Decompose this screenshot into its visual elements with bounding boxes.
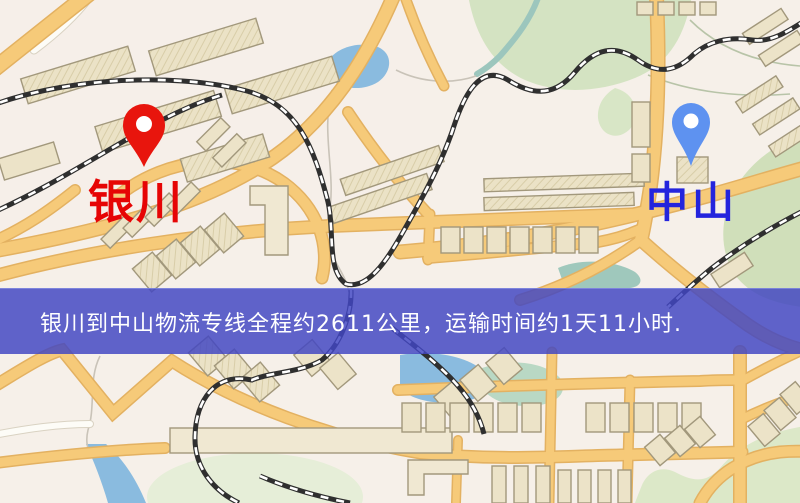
route-info-banner: 银川到中山物流专线全程约2611公里，运输时间约1天11小时.	[0, 288, 800, 354]
map-canvas[interactable]	[0, 0, 800, 503]
route-info-text: 银川到中山物流专线全程约2611公里，运输时间约1天11小时.	[0, 306, 682, 338]
map-view: 银川 中山 银川到中山物流专线全程约2611公里，运输时间约1天11小时.	[0, 0, 800, 503]
